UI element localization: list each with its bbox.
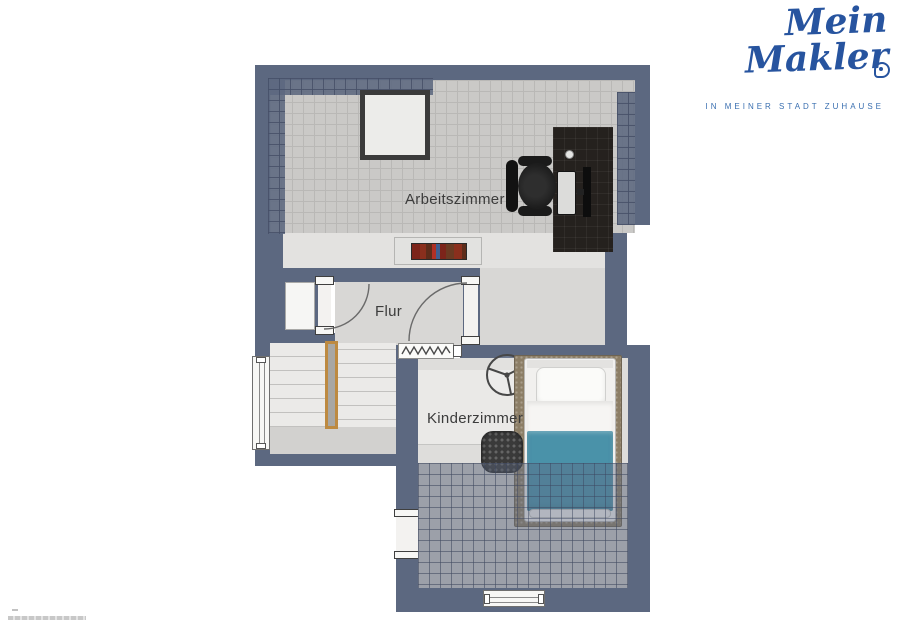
chair-seat xyxy=(518,163,556,209)
office-chair xyxy=(504,153,558,217)
monitor-stand xyxy=(577,189,584,195)
sideboard xyxy=(394,237,482,265)
staircase-left-flight xyxy=(270,343,326,427)
floor-landing-right xyxy=(480,268,605,345)
wall-left-lower xyxy=(255,282,270,360)
wall-bottom-left xyxy=(255,452,418,466)
brand-logo: Mein Makler IN MEINER STADT ZUHAUSE xyxy=(638,6,888,111)
monitor xyxy=(583,167,591,217)
roof-slope-hatch-right xyxy=(617,92,635,225)
roof-slope-hatch-kinder xyxy=(418,463,628,588)
chair-backrest xyxy=(506,160,518,212)
brand-logo-text: Mein Makler xyxy=(637,2,889,83)
door-swing-arc-icon xyxy=(407,281,469,343)
logo-tagline: IN MEINER STADT ZUHAUSE xyxy=(638,102,884,111)
door-kinder-opening xyxy=(396,515,418,553)
mug xyxy=(565,150,574,159)
room-label-arbeitszimmer: Arbeitszimmer xyxy=(405,191,505,208)
wall-kinder-left xyxy=(396,345,418,515)
window-bottom-icon xyxy=(483,590,545,607)
books xyxy=(411,243,467,260)
roof-slope-hatch-left xyxy=(268,78,285,234)
keyboard xyxy=(557,171,576,215)
radiator-icon xyxy=(398,343,454,359)
radiator-valve xyxy=(453,345,462,357)
room-label-kinderzimmer: Kinderzimmer xyxy=(427,410,523,427)
door-swing-arc-icon xyxy=(322,282,372,332)
square-table xyxy=(360,90,430,160)
wall-kinder-right xyxy=(628,345,650,612)
wall-left-stub xyxy=(255,448,270,466)
logo-pin-icon xyxy=(874,62,890,78)
bed-sheet xyxy=(527,401,613,434)
room-label-flur: Flur xyxy=(375,303,402,320)
staircase-landing xyxy=(270,427,396,454)
niche xyxy=(285,282,315,330)
exterior-notch xyxy=(627,225,650,282)
window-left-icon xyxy=(252,356,270,450)
stair-rail xyxy=(325,341,338,429)
creator-watermark xyxy=(8,608,98,624)
